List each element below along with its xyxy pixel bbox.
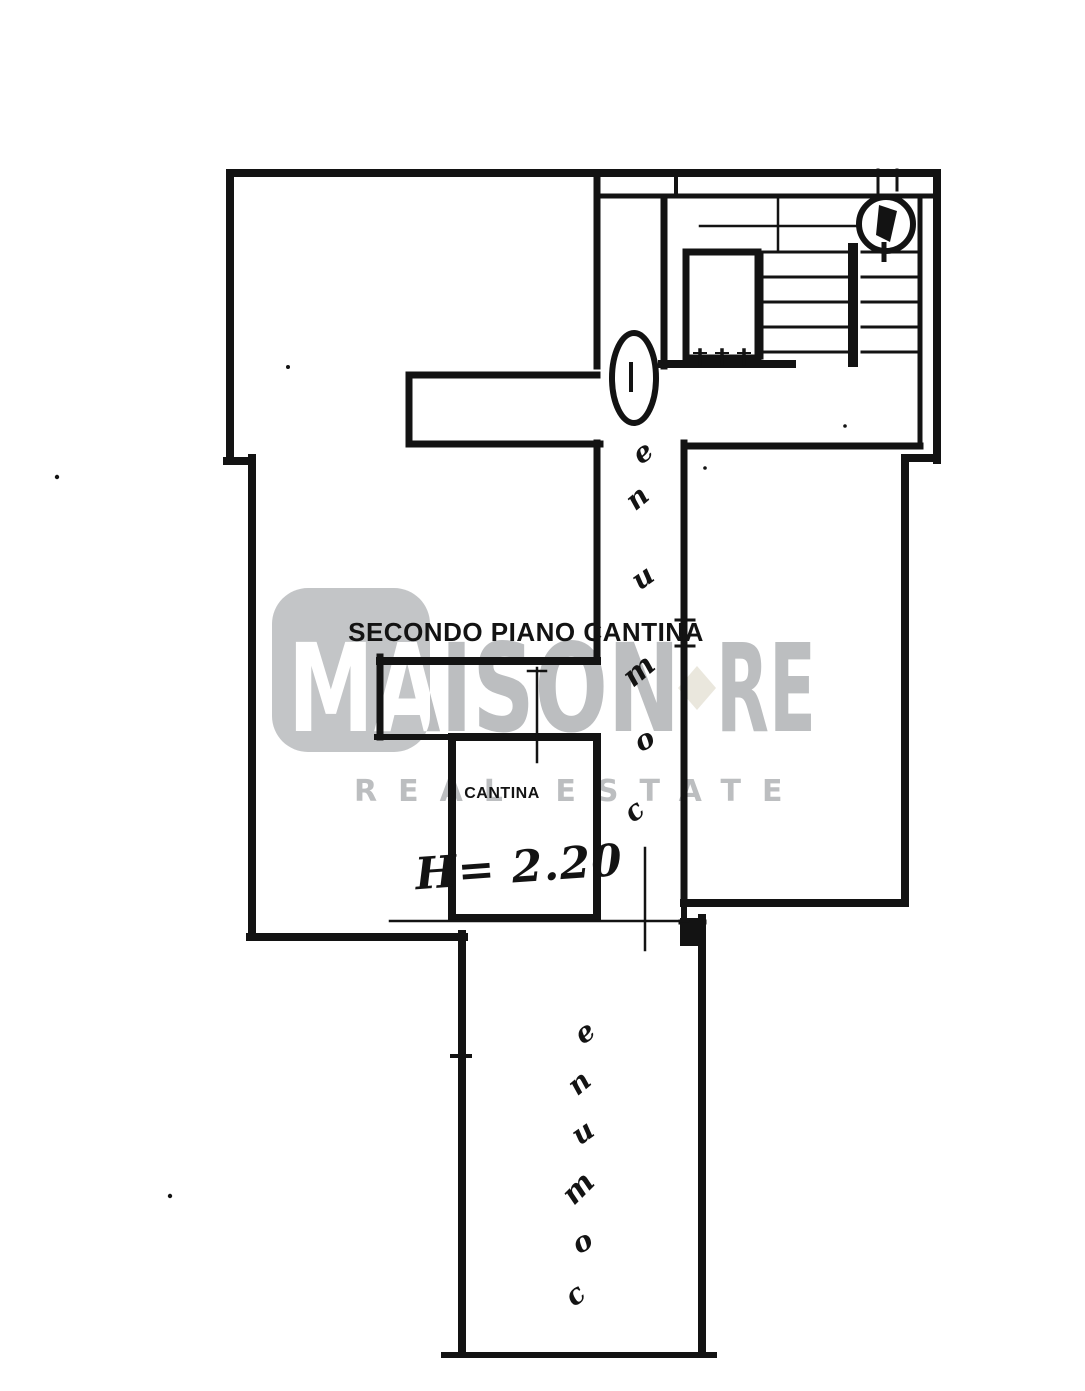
room-label: CANTINA — [464, 785, 540, 802]
handwritten-letter: c — [617, 793, 651, 829]
handwritten-letter: m — [615, 647, 662, 694]
height-annotation: H= 2.20 — [412, 835, 625, 901]
corridor-word-lower: e n u m o c — [555, 1014, 602, 1313]
handwritten-letter: m — [555, 1165, 602, 1212]
elevator-shaft — [686, 252, 758, 358]
handwritten-letter: e — [568, 1014, 602, 1051]
plan-title: SECONDO PIANO CANTINA — [348, 617, 704, 647]
handwritten-letter: e — [626, 434, 660, 471]
handwritten-letter: n — [618, 479, 655, 517]
floorplan-drawing: SECONDO PIANO CANTINA CANTINA H= 2.20 e … — [0, 0, 1085, 1391]
handwritten-letter: u — [565, 1113, 601, 1152]
handwritten-letter: o — [566, 1223, 599, 1261]
handwritten-letter: u — [625, 558, 661, 597]
corridor-oval — [612, 333, 656, 423]
handwritten-letter: c — [558, 1277, 592, 1313]
handwritten-letter: o — [628, 721, 661, 759]
handwritten-letter: n — [560, 1064, 597, 1102]
